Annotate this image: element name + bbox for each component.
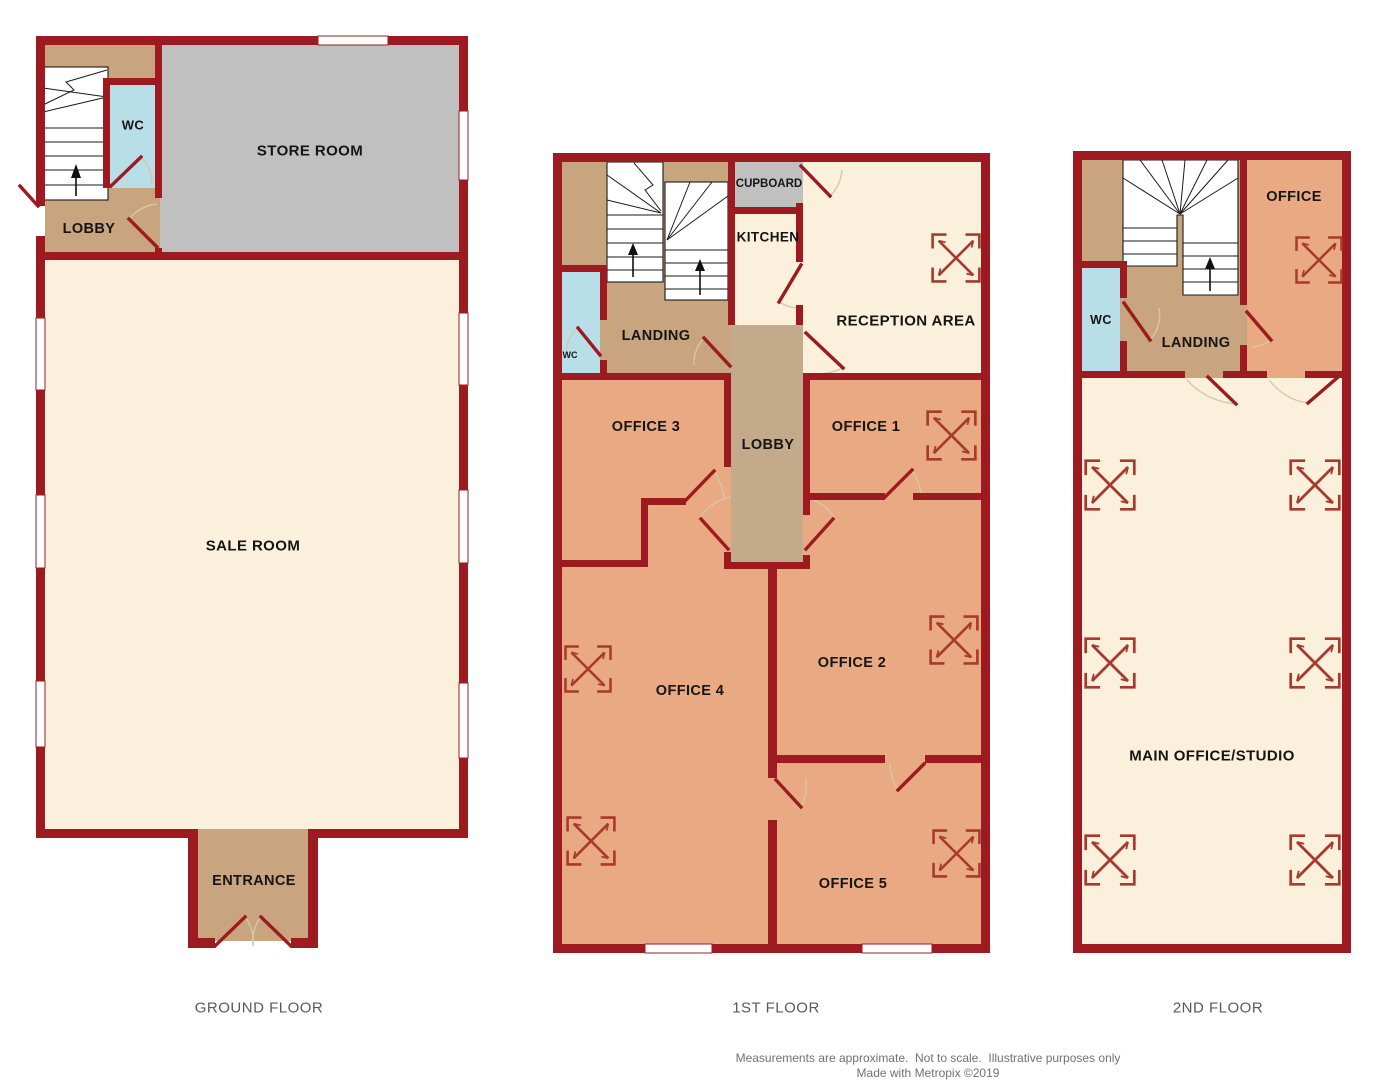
room-label-lobby-first: LOBBY [742, 437, 795, 453]
room-label-store-room: STORE ROOM [257, 143, 363, 160]
room-label-lobby-ground: LOBBY [63, 221, 116, 237]
room-label-wc-second: WC [1090, 313, 1112, 327]
first-floor-plan [553, 153, 990, 953]
room-label-sale-room: SALE ROOM [206, 538, 300, 555]
room-label-wc-ground: WC [122, 118, 144, 133]
room-label-office-3: OFFICE 3 [612, 419, 680, 435]
second-floor-plan [1073, 151, 1351, 953]
ground-floor-plan [20, 36, 468, 948]
caption-ground-floor: GROUND FLOOR [195, 1000, 324, 1017]
footer-credit: Made with Metropix ©2019 [857, 1066, 1000, 1080]
footer-disclaimer: Measurements are approximate. Not to sca… [736, 1051, 1121, 1065]
caption-2nd-floor: 2ND FLOOR [1173, 1000, 1263, 1017]
room-label-reception-area: RECEPTION AREA [836, 313, 975, 330]
room-label-landing-second: LANDING [1162, 335, 1231, 351]
room-label-kitchen: KITCHEN [737, 230, 800, 245]
room-label-wc-first: WC [563, 350, 578, 360]
room-label-main-office-studio: MAIN OFFICE/STUDIO [1129, 748, 1295, 765]
room-label-office-2: OFFICE 2 [818, 655, 886, 671]
room-label-entrance: ENTRANCE [212, 873, 296, 889]
room-label-landing-first: LANDING [622, 328, 691, 344]
room-label-cupboard: CUPBOARD [736, 178, 802, 190]
room-label-office-5: OFFICE 5 [819, 876, 887, 892]
caption-1st-floor: 1ST FLOOR [732, 1000, 820, 1017]
room-label-office-4: OFFICE 4 [656, 683, 724, 699]
room-label-office-second: OFFICE [1266, 189, 1322, 205]
room-label-office-1: OFFICE 1 [832, 419, 900, 435]
floorplan-page: WC STORE ROOM LOBBY SALE ROOM ENTRANCE C… [0, 0, 1400, 1080]
